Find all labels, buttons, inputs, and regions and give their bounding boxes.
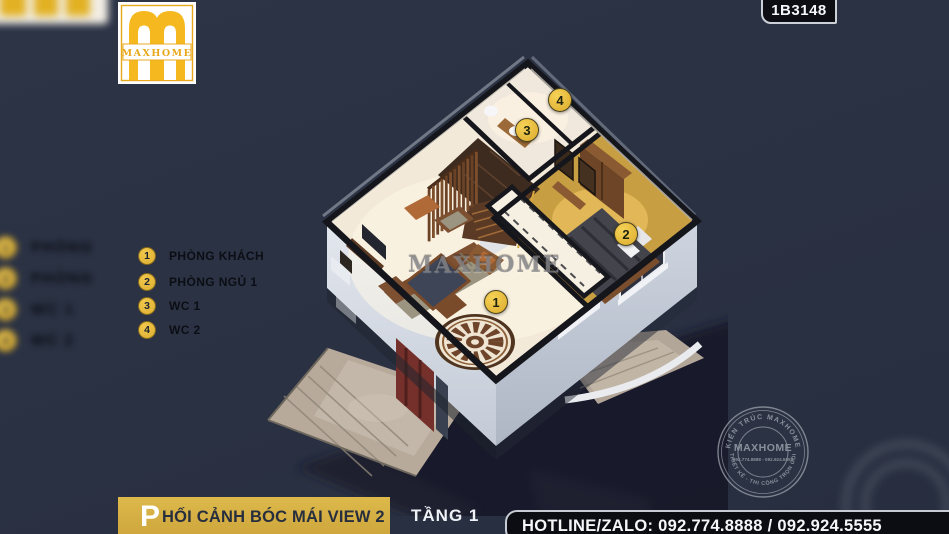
- legend-ghost-row: 3 WC 1: [0, 299, 94, 320]
- plan-watermark: MAXHOME: [408, 252, 548, 278]
- design-code-badge: 1B3148: [761, 0, 837, 24]
- legend-number-badge: 4: [0, 329, 17, 352]
- logo-wordmark: MAXHOME: [122, 48, 193, 59]
- hotline-badge: HOTLINE/ZALO: 092.774.8888 / 092.924.555…: [505, 510, 949, 534]
- seal-phone-text: 092.774.8888 - 092.924.5555: [733, 457, 794, 462]
- hotline-text: HOTLINE/ZALO: 092.774.8888 / 092.924.555…: [522, 517, 882, 534]
- seal-center-text: MAXHOME: [734, 442, 792, 454]
- legend-ghost-row: 2 PHÒNG: [0, 268, 94, 289]
- design-code: 1B3148: [771, 0, 827, 22]
- corner-logo-square: [34, 0, 58, 16]
- room-marker-living-room: 1: [484, 290, 508, 314]
- corner-logo-square: [66, 0, 90, 16]
- view-title-initial: P: [140, 504, 160, 530]
- legend-number-badge: 2: [138, 273, 156, 291]
- legend-number-badge: 1: [138, 247, 156, 265]
- legend-number-badge: 4: [138, 321, 156, 339]
- legend-ghost-row: 1 PHÒNG: [0, 237, 94, 258]
- wc-toilet: [484, 106, 498, 117]
- legend-number-badge: 3: [0, 298, 17, 321]
- legend-number-badge: 3: [138, 297, 156, 315]
- legend-number-badge: 1: [0, 236, 17, 259]
- room-marker-wc-2: 4: [548, 88, 572, 112]
- poster-canvas: MAXHOME 1B3148 1 PHÒNG 2 PHÒNG 3 WC 1 4 …: [0, 0, 949, 534]
- legend-number-badge: 2: [0, 267, 17, 290]
- floorplan-3d-render: [228, 48, 728, 516]
- legend-ghost-blur: 1 PHÒNG 2 PHÒNG 3 WC 1 4 WC 2: [0, 237, 94, 351]
- maxhome-logo: MAXHOME: [118, 2, 196, 89]
- legend-label: PHÒNG: [31, 270, 94, 287]
- legend-label: WC 2: [31, 332, 75, 349]
- legend-label: PHÒNG: [31, 239, 94, 256]
- legend-ghost-row: 4 WC 2: [0, 330, 94, 351]
- view-title-text: HỐI CẢNH BÓC MÁI VIEW 2: [162, 508, 385, 527]
- room-marker-bedroom-1: 2: [614, 222, 638, 246]
- room-marker-wc-1: 3: [515, 118, 539, 142]
- seal-stamp-icon: KIẾN TRÚC MAXHOME THIẾT KẾ - THI CÔNG TR…: [713, 402, 813, 502]
- legend-label: WC 1: [31, 301, 75, 318]
- maxhome-logo-icon: MAXHOME: [118, 2, 196, 84]
- corner-logo-square: [0, 0, 26, 16]
- legend-label: WC 2: [169, 323, 201, 337]
- legend-label: WC 1: [169, 299, 201, 313]
- view-title-box: P HỐI CẢNH BÓC MÁI VIEW 2: [118, 497, 390, 534]
- floor-label: TẦNG 1: [411, 506, 479, 526]
- corner-logo-blur: [0, 0, 108, 24]
- seal-stamp: KIẾN TRÚC MAXHOME THIẾT KẾ - THI CÔNG TR…: [713, 402, 813, 507]
